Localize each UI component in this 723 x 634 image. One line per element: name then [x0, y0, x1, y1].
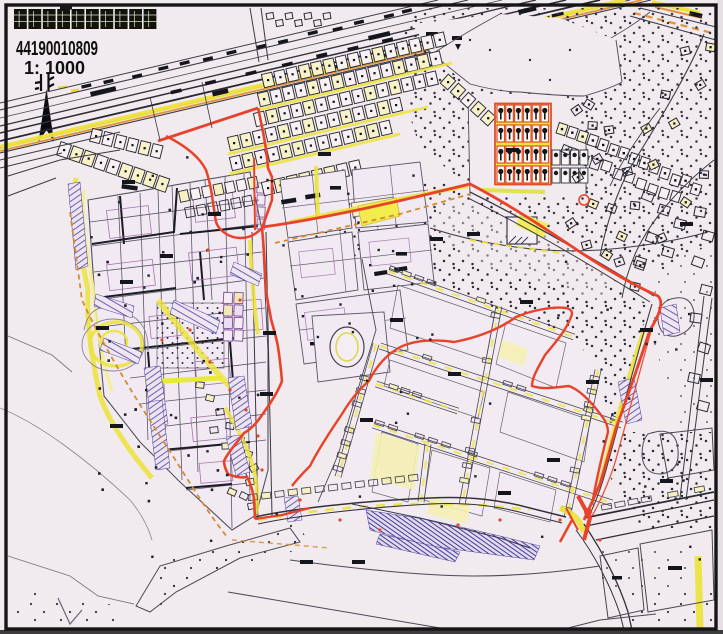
svg-text:44190010809: 44190010809 [16, 38, 98, 60]
svg-text:1: 1000: 1: 1000 [24, 58, 85, 78]
